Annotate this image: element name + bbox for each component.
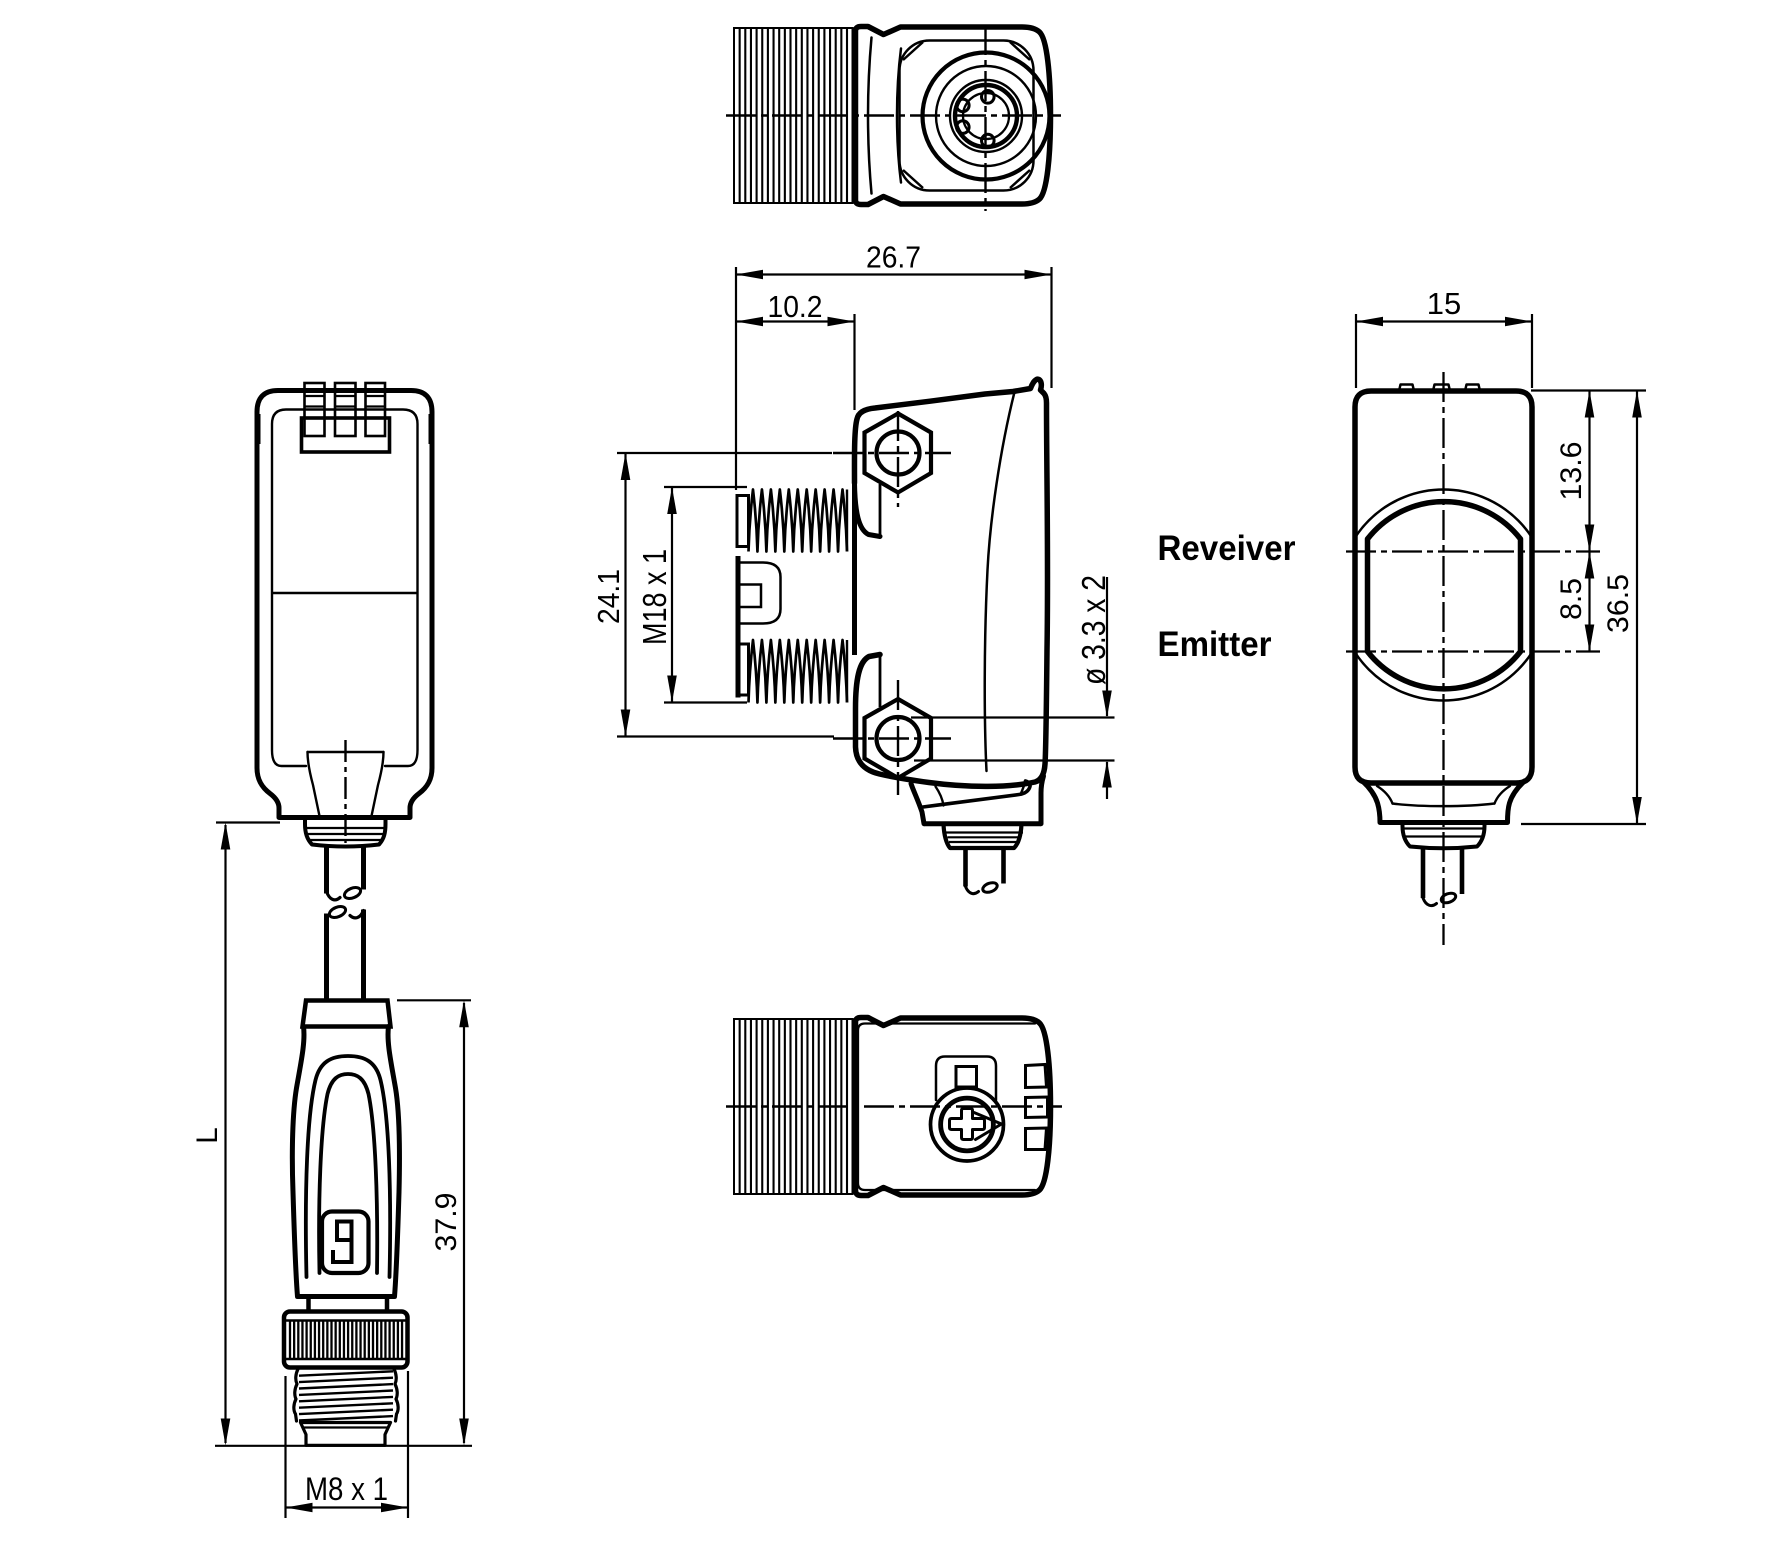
svg-text:ø 3.3 x 2: ø 3.3 x 2 — [1075, 575, 1112, 685]
svg-text:Emitter: Emitter — [1158, 625, 1272, 664]
svg-text:8.5: 8.5 — [1555, 578, 1588, 620]
svg-text:13.6: 13.6 — [1555, 442, 1588, 501]
svg-text:M8 x 1: M8 x 1 — [305, 1471, 388, 1507]
svg-text:Reveiver: Reveiver — [1158, 529, 1296, 568]
svg-text:24.1: 24.1 — [591, 569, 626, 624]
svg-text:36.5: 36.5 — [1602, 574, 1635, 633]
svg-text:M18 x 1: M18 x 1 — [636, 549, 673, 645]
svg-text:L: L — [191, 1127, 224, 1144]
svg-text:26.7: 26.7 — [866, 240, 921, 275]
svg-text:10.2: 10.2 — [768, 289, 823, 324]
svg-text:37.9: 37.9 — [430, 1193, 463, 1252]
svg-text:15: 15 — [1427, 286, 1461, 321]
